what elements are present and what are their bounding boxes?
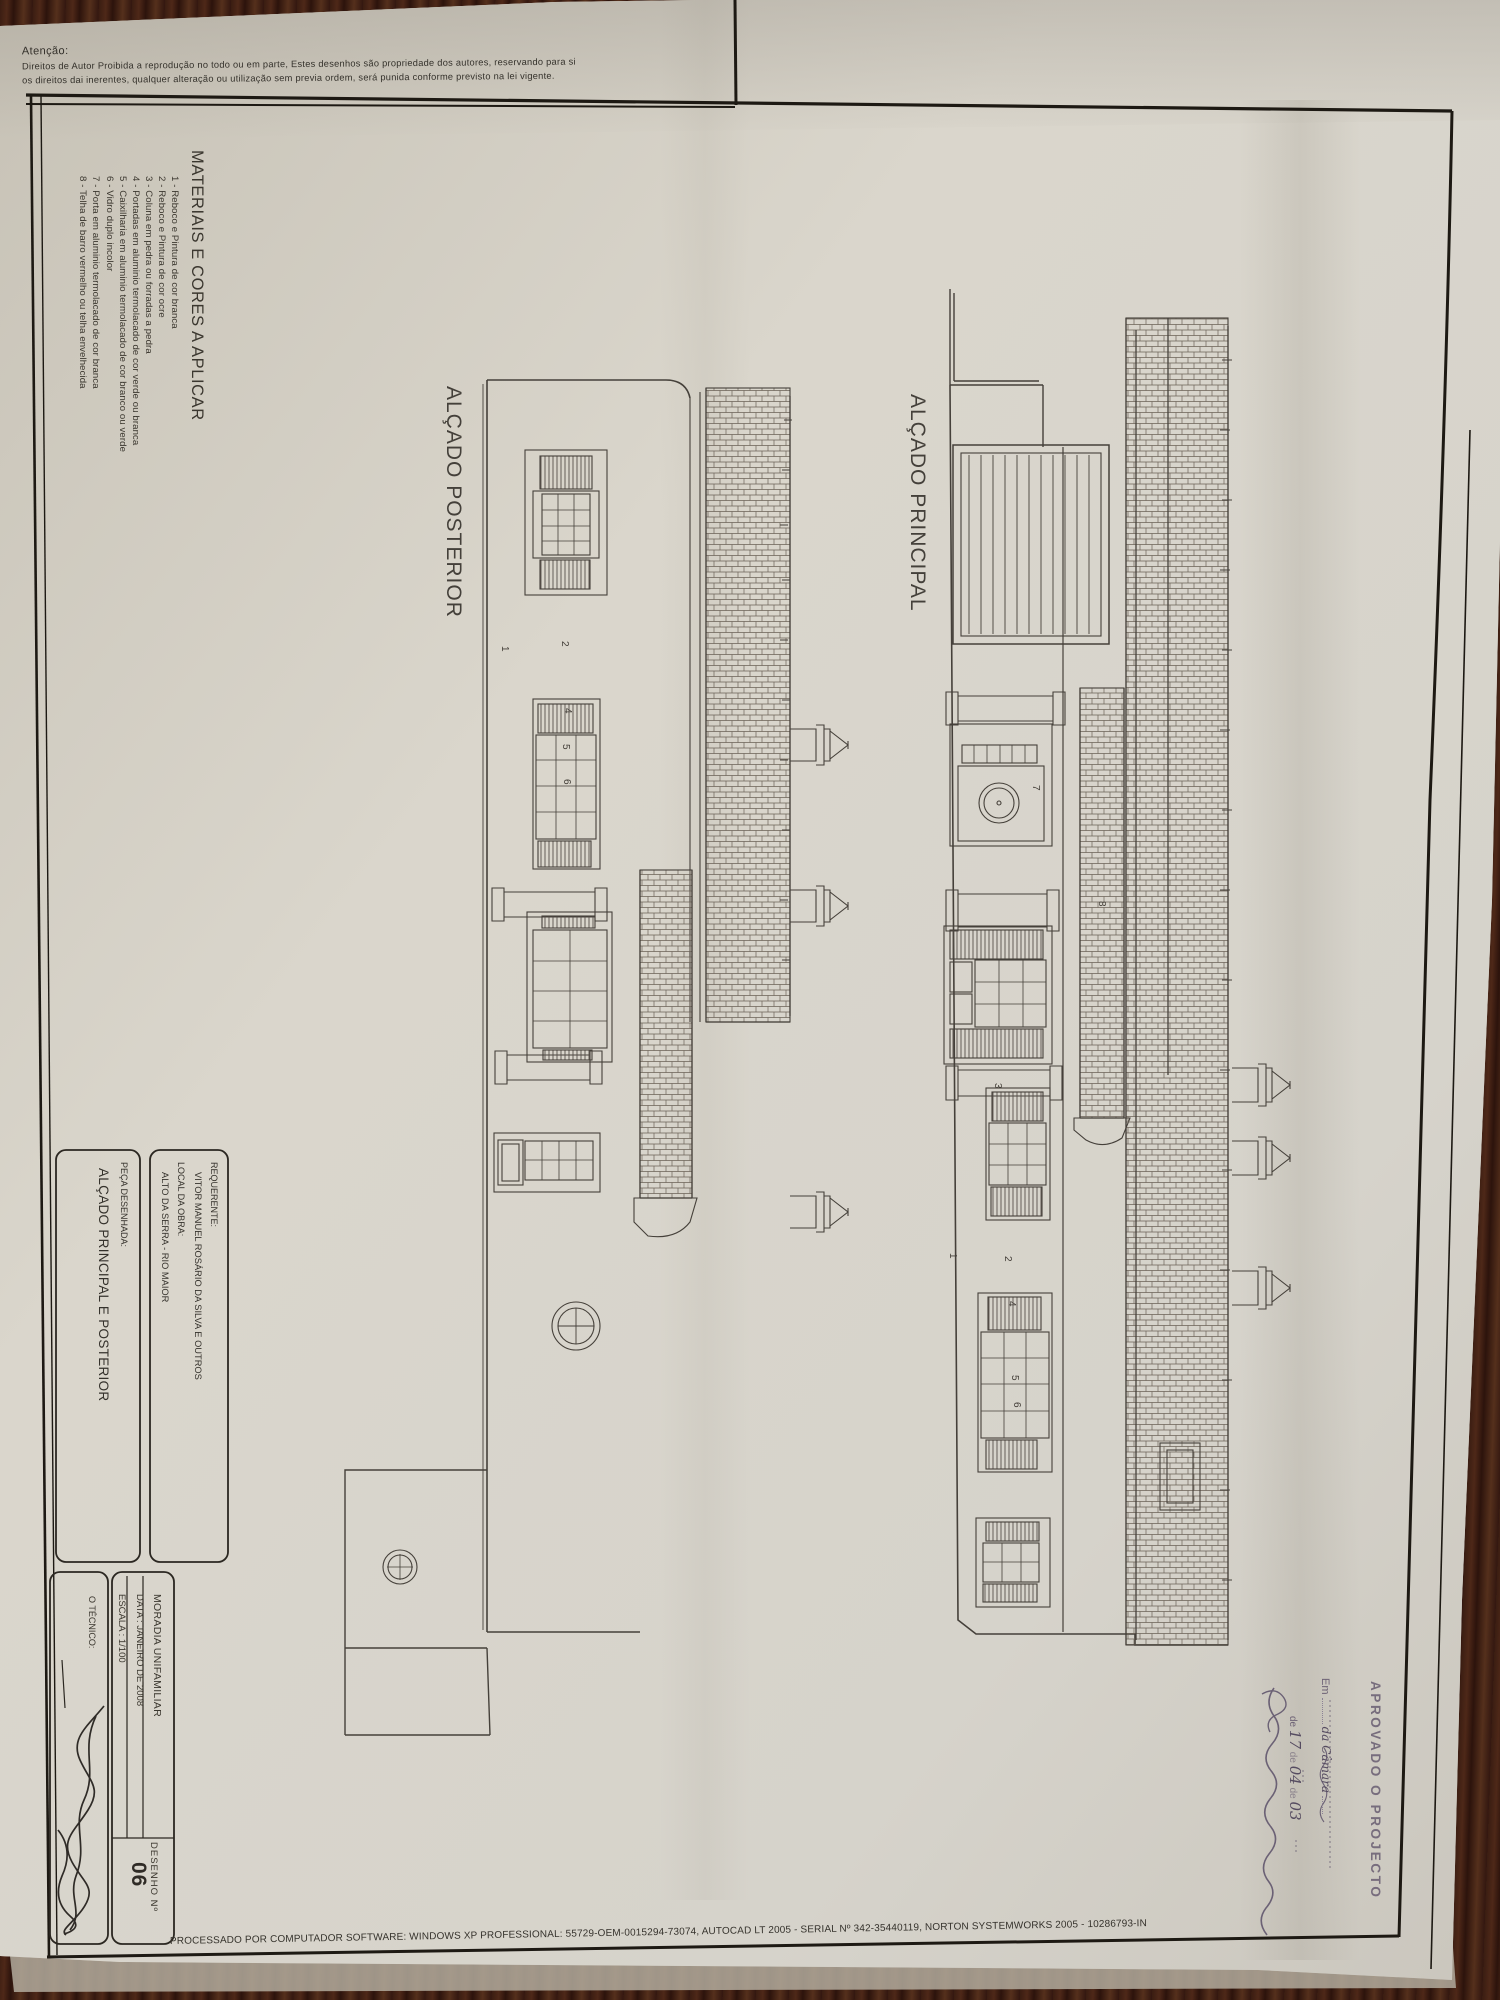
material-item: 7 - Porta em aluminio termolacado de cor… [89, 150, 102, 452]
material-item: 8 - Telha de barro vermelho ou telha env… [76, 150, 89, 452]
material-item: 4 - Portadas em aluminio termolacado de … [129, 150, 142, 452]
ref-number: 7 [1030, 785, 1041, 791]
stamp-dotted-line [1322, 1796, 1332, 1814]
ref-number: 1 [499, 646, 510, 652]
data-field: DATA : JANEIRO DE 2008 [134, 1594, 145, 1706]
ref-number: 4 [562, 708, 573, 714]
ref-number: 2 [1002, 1256, 1013, 1262]
ref-number: 6 [561, 779, 572, 785]
ref-number: 4 [1006, 1301, 1017, 1307]
materials-legend: MATERIAIS E CORES A APLICAR 1 - Reboco e… [76, 150, 207, 452]
material-item: 2 - Reboco e Pintura de cor ocre [155, 150, 168, 452]
principal-elevation-title: ALÇADO PRINCIPAL [905, 394, 929, 612]
sheet-and-linework [0, 0, 1500, 2000]
stamp-year-handwritten: 03 [1286, 1801, 1304, 1820]
peca-label: PEÇA DESENHADA: [116, 1162, 132, 1401]
ref-number: 3 [992, 1083, 1003, 1089]
stamp-em-label: Em [1319, 1678, 1331, 1695]
aprovado-stamp-fields: Em da Câmara de 17 de 04 de 03 [1277, 1678, 1341, 1821]
photo-of-architectural-drawing: { "notice": { "heading": "Atenção:", "li… [0, 0, 1500, 2000]
tecnico-label: O TÉCNICO: [87, 1596, 97, 1648]
stamp-camara-handwriting: da Câmara [1319, 1727, 1333, 1793]
posterior-round-window [552, 1302, 600, 1350]
stamp-day-handwritten: 17 [1286, 1730, 1304, 1749]
stamp-dotted-line [1322, 1698, 1332, 1724]
ref-number: 5 [560, 744, 571, 750]
copyright-notice: Atenção: Direitos de Autor Proibida a re… [22, 40, 576, 88]
peca-value: ALÇADO PRINCIPAL E POSTERIOR [90, 1162, 116, 1401]
local-obra-label: LOCAL DA OBRA: [173, 1162, 189, 1380]
local-obra-value: ALTO DA SERRA - RIO MAIOR [156, 1162, 173, 1380]
escala-field: ESCALA : 1/100 [116, 1594, 127, 1663]
material-item: 6 - Vidro duplo incolor [102, 150, 115, 452]
stamp-de-label: de [1287, 1716, 1298, 1727]
ref-number: 2 [559, 641, 570, 647]
material-item: 5 - Caixilharia em aluminio termolacado … [116, 150, 129, 452]
posterior-elevation-title: ALÇADO POSTERIOR [441, 386, 465, 618]
requerente-value: VITOR MANUEL ROSÁRIO DA SILVA E OUTROS [189, 1162, 206, 1380]
ref-number: 5 [1009, 1375, 1020, 1381]
stamp-de-label: de [1287, 1788, 1298, 1799]
stamp-de-label: de [1287, 1752, 1298, 1763]
aprovado-stamp-title: APROVADO O PROJECTO [1368, 1681, 1383, 1899]
requerente-block: REQUERENTE: VITOR MANUEL ROSÁRIO DA SILV… [156, 1162, 222, 1380]
material-item: 1 - Reboco e Pintura de cor branca [168, 150, 181, 452]
desenho-number: 06 [126, 1862, 150, 1887]
materials-title: MATERIAIS E CORES A APLICAR [186, 150, 207, 452]
ref-number: 1 [947, 1253, 958, 1259]
ref-number: 8 [1096, 901, 1107, 907]
requerente-label: REQUERENTE: [206, 1162, 222, 1380]
material-item: 3 - Coluna em pedra ou forradas a pedra [142, 150, 155, 452]
peca-desenhada-block: PEÇA DESENHADA: ALÇADO PRINCIPAL E POSTE… [90, 1162, 132, 1401]
stamp-month-handwritten: 04 [1286, 1766, 1304, 1785]
moradia-title: MORADIA UNIFAMILIAR [151, 1594, 163, 1717]
ref-number: 6 [1011, 1402, 1022, 1408]
